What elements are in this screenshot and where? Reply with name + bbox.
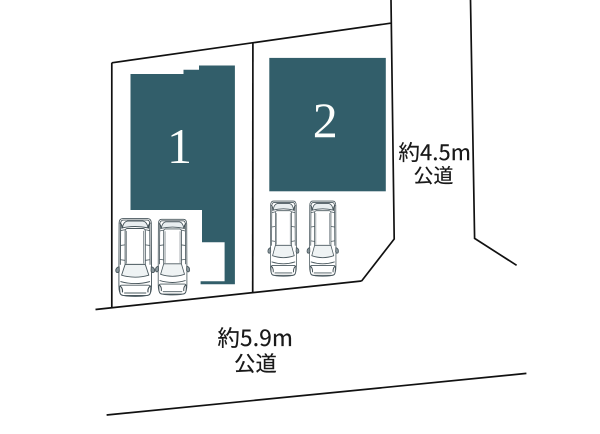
svg-text:1: 1 xyxy=(167,118,192,174)
svg-text:2: 2 xyxy=(313,92,338,148)
